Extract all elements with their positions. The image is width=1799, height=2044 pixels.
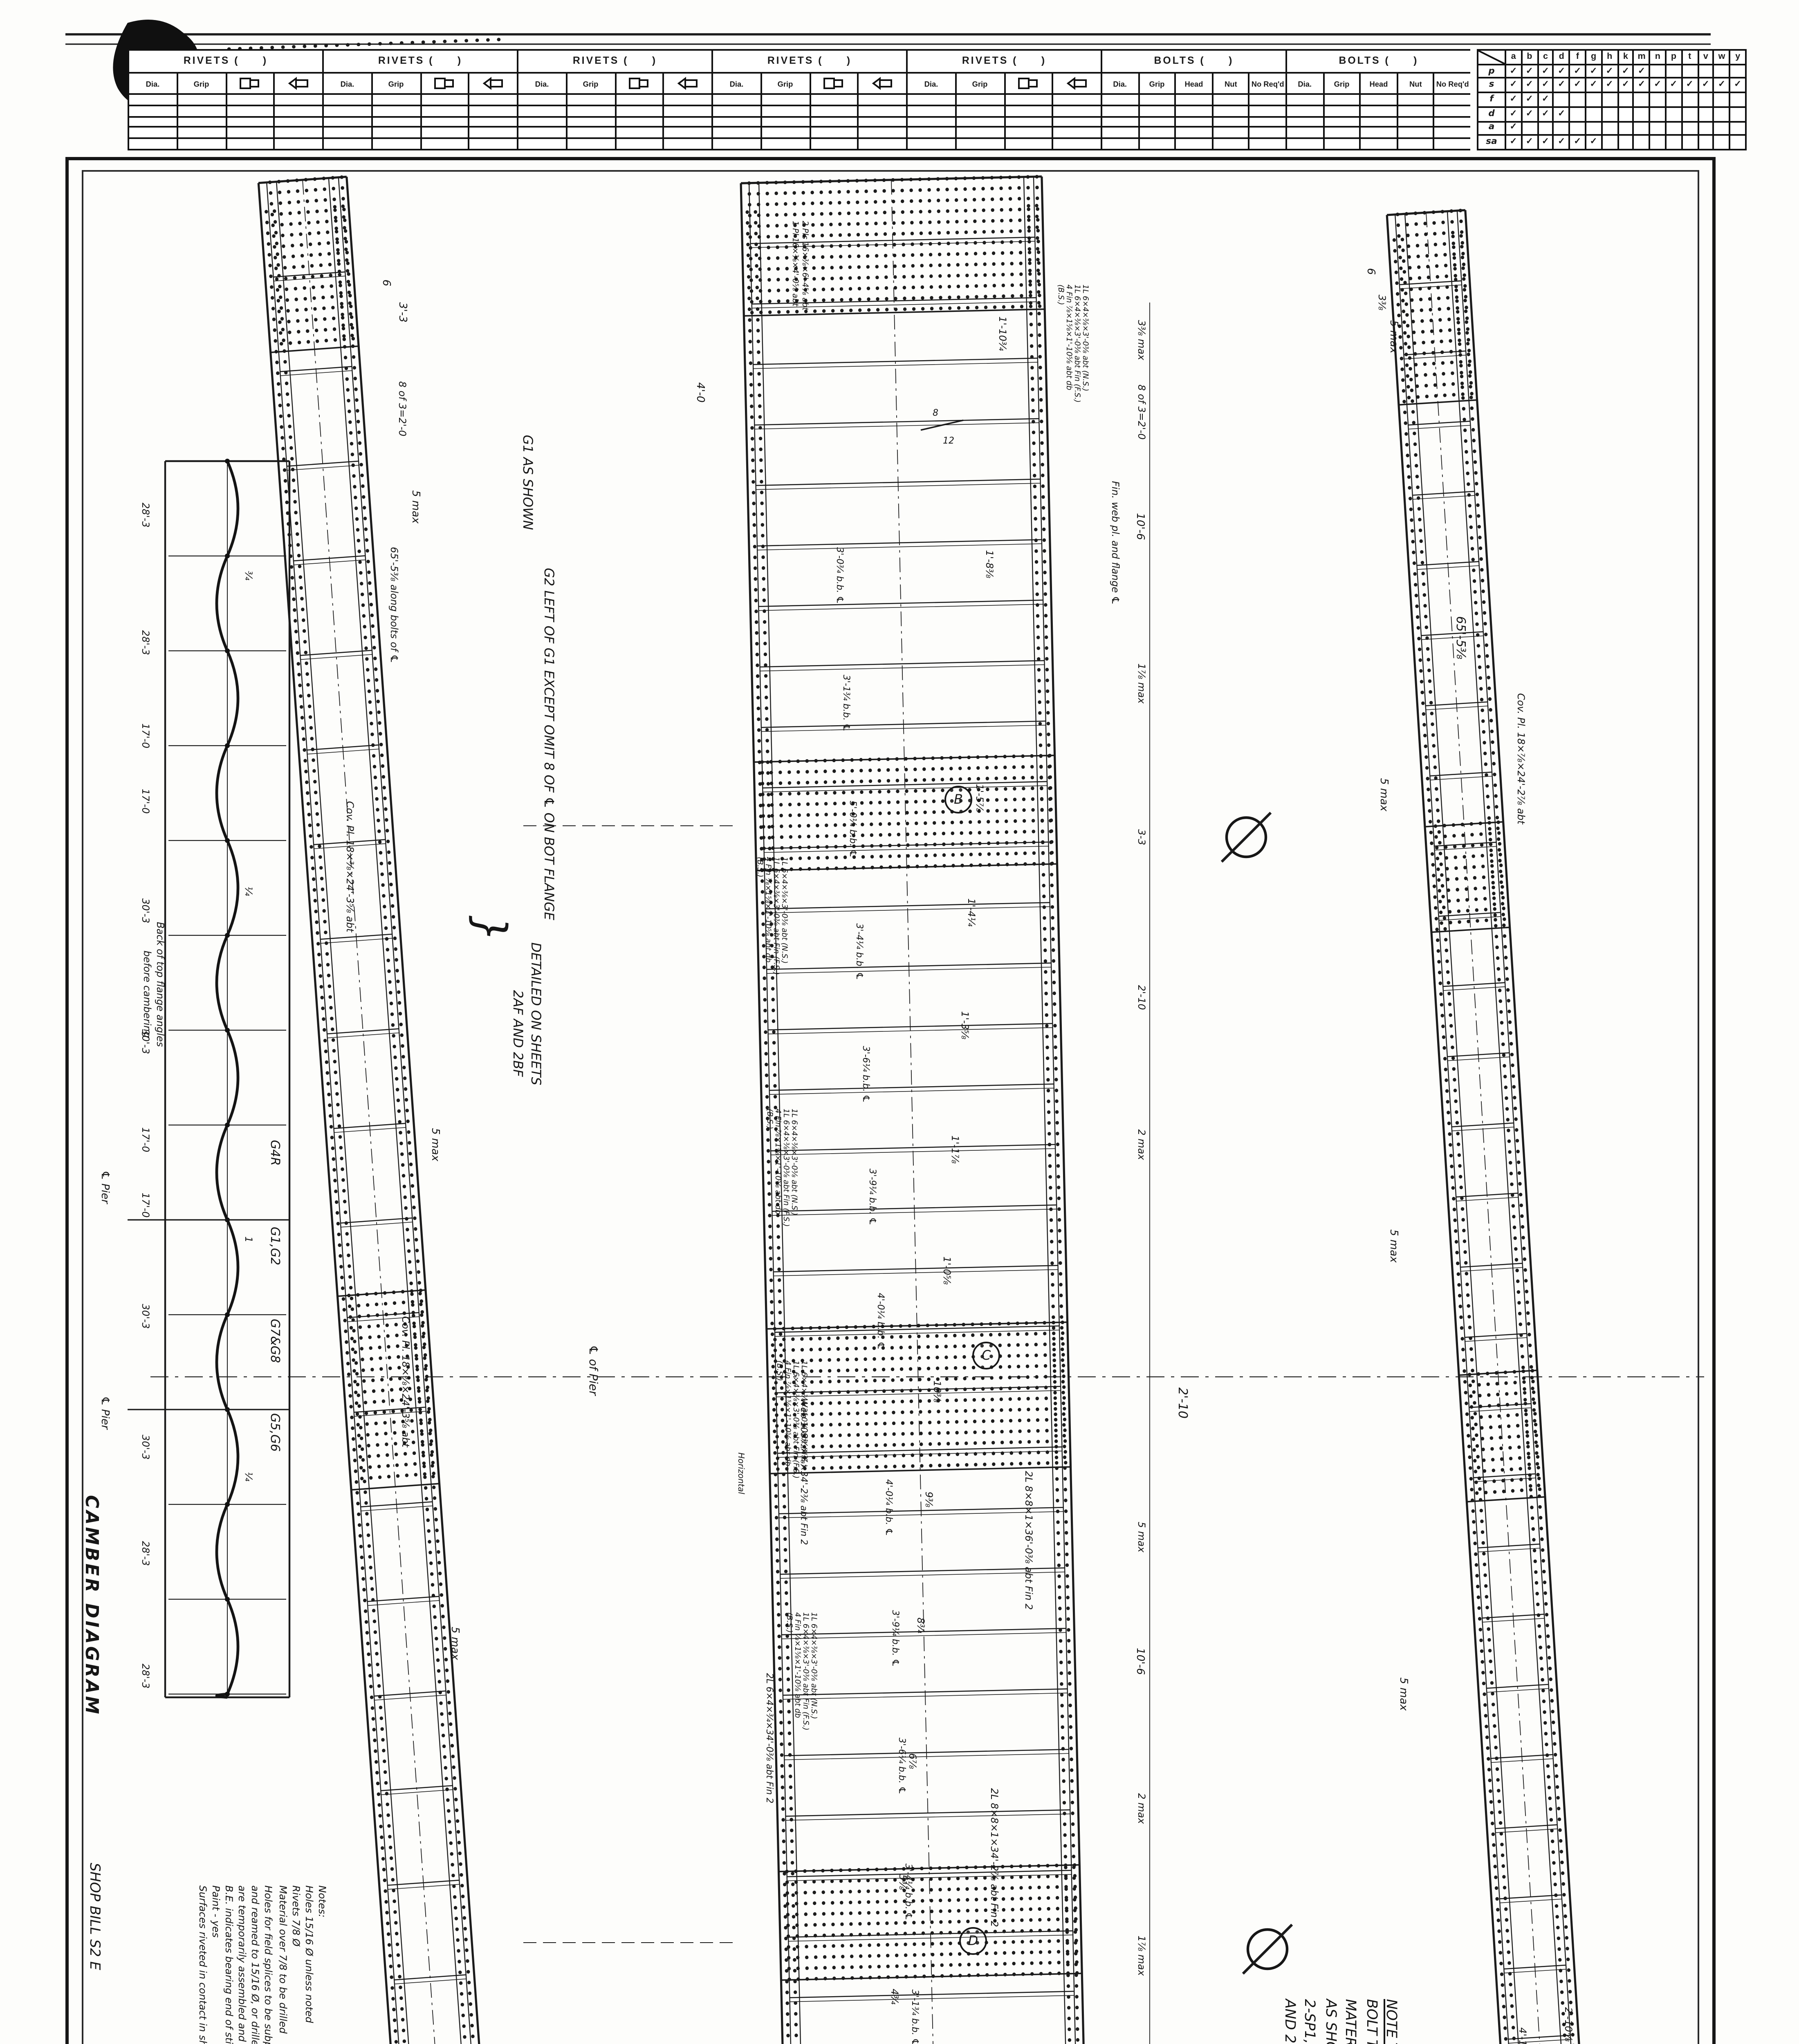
annotation-label: 5 max: [1378, 778, 1389, 811]
grid-col-header: v: [1698, 51, 1714, 63]
note-line: Notes:: [314, 1885, 327, 2044]
rivet-symbol-cell: [470, 74, 517, 93]
empty-cell: [1570, 122, 1586, 134]
empty-cell: [518, 95, 567, 104]
empty-cell: [762, 139, 810, 149]
empty-cell: [1618, 94, 1634, 106]
annotation-label: SHOP BILL S2 E: [86, 1863, 100, 1970]
empty-cell: [1731, 136, 1745, 149]
empty-cell: [859, 117, 906, 126]
annotation-label: Cov. Pl. 18×⅜×24'-3⅝ abt: [399, 1316, 409, 1448]
annotation-label: 4'-10⅝ not less: [1516, 2027, 1526, 2044]
column-header: No Req'd: [1435, 74, 1470, 93]
empty-cell: [470, 139, 517, 149]
empty-cell: [616, 139, 664, 149]
empty-cell: [1731, 122, 1745, 134]
annotation-label: }: [468, 915, 510, 942]
empty-cell: [567, 139, 616, 149]
rivet-symbol-icon: [482, 77, 505, 90]
check-mark: ✓: [1506, 108, 1522, 121]
empty-data-row: [129, 117, 322, 128]
rivet-symbol-cell: [810, 74, 859, 93]
note-line: AS SHOWN ON SHEET 2EF-: [1319, 1999, 1339, 2044]
annotation-label: 3'-6¼ b.b. ℄: [859, 1046, 868, 1103]
callout-line: 4 Fin ⅞×1⅝×1'-10⅝ abt db (B.S.): [754, 857, 770, 981]
empty-cell: [1586, 108, 1602, 121]
empty-cell: [1139, 95, 1176, 104]
empty-cell: [1102, 128, 1139, 138]
empty-cell: [129, 95, 178, 104]
annotation-label: 10'-6: [1135, 513, 1145, 540]
empty-cell: [275, 139, 322, 149]
empty-cell: [1324, 139, 1361, 149]
annotation-label: Cov. Pl. 18×⅜×24'-3⅝ abt: [343, 801, 353, 932]
empty-cell: [1213, 128, 1250, 138]
empty-cell: [1102, 117, 1139, 126]
empty-cell: [713, 95, 762, 104]
empty-cell: [762, 95, 810, 104]
empty-cell: [129, 128, 178, 138]
empty-cell: [178, 117, 227, 126]
empty-data-row: [129, 139, 322, 149]
annotation-label: 12: [943, 439, 954, 448]
annotation-label: 10⅜: [931, 1381, 940, 1403]
empty-cell: [470, 128, 517, 138]
note-line: Material over 7/8 to be drilled: [274, 1885, 287, 2044]
empty-data-row: [713, 95, 906, 106]
callout-line: 4 Fin ⅞×1⅝×1'-10⅝ abt db (B.S.): [763, 1109, 780, 1233]
note-line: 2-SP1, 4-SP2, 2-SP3, 2-SP4,: [1298, 1999, 1319, 2044]
empty-cell: [1651, 122, 1667, 134]
grid-corner: [1478, 51, 1506, 63]
empty-cell: [810, 117, 859, 126]
empty-cell: [1054, 95, 1101, 104]
check-mark: ✓: [1506, 79, 1522, 92]
empty-cell: [616, 128, 664, 138]
empty-cell: [1635, 94, 1651, 106]
annotation-label: G7&G8: [269, 1319, 281, 1363]
empty-cell: [1324, 117, 1361, 126]
group-header: RIVETS ( ): [713, 51, 906, 74]
empty-cell: [227, 128, 275, 138]
empty-data-row: [1102, 106, 1285, 117]
column-header: Grip: [956, 74, 1005, 93]
stiffener-callout: 1L 6×4×⅜×3'-0⅜ abt (N.S.)1L 6×4×⅜×3'-0⅜ …: [754, 857, 787, 981]
annotation-label: G1 AS SHOWN: [520, 435, 533, 530]
callout-line: 4 Fin ⅞×1⅝×1'-10⅝ abt db (B.S.): [783, 1612, 800, 1737]
empty-cell: [1102, 139, 1139, 149]
empty-cell: [1651, 65, 1667, 78]
note-line: Rivets 7/8 Ø: [287, 1885, 301, 2044]
grid-row: f✓✓✓: [1478, 94, 1745, 108]
annotation-label: Cov. Pl. 18×⅞×24'-2⅞ abt: [1514, 693, 1524, 825]
check-mark: ✓: [1570, 79, 1586, 92]
check-mark: ✓: [1538, 94, 1554, 106]
empty-cell: [1054, 139, 1101, 149]
annotation-label: 4¾: [888, 1989, 898, 2005]
empty-cell: [1435, 106, 1470, 115]
empty-cell: [372, 139, 421, 149]
empty-data-row: [1287, 128, 1470, 139]
check-mark: ✓: [1731, 79, 1745, 92]
empty-cell: [1714, 108, 1730, 121]
column-header: Grip: [1324, 74, 1361, 93]
empty-cell: [1005, 139, 1054, 149]
empty-cell: [1698, 122, 1714, 134]
empty-data-row: [713, 128, 906, 139]
check-mark: ✓: [1538, 108, 1554, 121]
callout-line: 1L 6×4×⅜×3'-0⅜ abt (N.S.): [799, 1360, 807, 1485]
empty-cell: [1618, 136, 1634, 149]
empty-cell: [1698, 136, 1714, 149]
empty-cell: [810, 106, 859, 115]
group-header: RIVETS ( ): [908, 51, 1101, 74]
empty-cell: [810, 128, 859, 138]
annotation-label: 65'-5⅜: [1454, 616, 1467, 659]
column-header: Head: [1176, 74, 1213, 93]
empty-cell: [1213, 95, 1250, 104]
empty-cell: [1618, 122, 1634, 134]
column-header: Dia.: [713, 74, 762, 93]
empty-cell: [713, 117, 762, 126]
empty-cell: [1139, 117, 1176, 126]
rivet-symbol-icon: [239, 77, 262, 90]
empty-data-row: [713, 139, 906, 149]
annotation-label: 3'-9¼ b.b. ℄: [888, 1610, 897, 1667]
empty-cell: [1538, 122, 1554, 134]
empty-cell: [1682, 122, 1698, 134]
empty-cell: [421, 117, 470, 126]
annotation-label: 5 max: [1135, 1522, 1145, 1552]
bolts-group: BOLTS ( )Dia.GripHeadNutNo Req'd: [1101, 49, 1285, 150]
empty-cell: [1651, 136, 1667, 149]
annotation-label: 5 max: [1388, 1229, 1399, 1263]
annotation-label: 2AF AND 2BF: [510, 990, 523, 1077]
empty-cell: [1361, 106, 1398, 115]
callout-line: 1L 6×4×⅜×3'-0⅜ abt (N.S.): [1080, 285, 1088, 409]
grid-row: p✓✓✓✓✓✓✓✓✓: [1478, 65, 1745, 79]
empty-cell: [518, 128, 567, 138]
empty-cell: [859, 106, 906, 115]
annotation-label: 1: [242, 1236, 252, 1242]
empty-cell: [664, 106, 711, 115]
note-line: MATERIAL TO GIRDER G5: [1339, 1999, 1359, 2044]
rivet-symbol-icon: [433, 77, 456, 90]
rivet-symbol-icon: [1017, 77, 1040, 90]
empty-data-row: [129, 128, 322, 139]
empty-cell: [1667, 94, 1682, 106]
empty-cell: [616, 117, 664, 126]
empty-cell: [1176, 139, 1213, 149]
callout-line: 2 Pls 16×⅜×6'-4⅝ abt: [798, 221, 808, 322]
annotation-label: 65'-5⅜ along bolts of ℄: [388, 547, 397, 663]
empty-cell: [1324, 106, 1361, 115]
annotation-label: 17'-0: [139, 1192, 149, 1217]
check-mark: ✓: [1522, 136, 1538, 149]
empty-cell: [859, 139, 906, 149]
drawing-sheet: RIVETS ( )Dia.GripRIVETS ( )Dia.GripRIVE…: [0, 0, 1799, 2044]
empty-cell: [518, 117, 567, 126]
empty-cell: [1618, 108, 1634, 121]
check-mark: ✓: [1586, 136, 1602, 149]
empty-data-row: [713, 106, 906, 117]
empty-cell: [1731, 65, 1745, 78]
empty-cell: [1714, 65, 1730, 78]
annotation-label: 8: [933, 411, 938, 420]
grid-col-header: y: [1731, 51, 1745, 63]
annotation-label: 30'-3: [139, 1304, 149, 1329]
rivet-symbol-cell: [227, 74, 275, 93]
empty-cell: [324, 128, 372, 138]
empty-cell: [1398, 128, 1435, 138]
empty-data-row: [324, 95, 517, 106]
empty-cell: [810, 95, 859, 104]
annotation-label: 3'-9¼ b.b. ℄: [866, 1169, 875, 1226]
empty-cell: [1250, 117, 1285, 126]
annotation-label: 4'-0: [695, 382, 705, 403]
empty-cell: [1435, 117, 1470, 126]
empty-cell: [1324, 95, 1361, 104]
empty-cell: [1714, 94, 1730, 106]
empty-cell: [859, 95, 906, 104]
check-mark: ✓: [1554, 79, 1570, 92]
empty-cell: [1287, 106, 1324, 115]
callout-line: 1L 6×4×⅜×3'-0⅜ abt (N.S.): [808, 1612, 817, 1737]
annotation-label: 3'-1¾ b.b. ℄: [908, 1990, 917, 2044]
empty-cell: [1250, 128, 1285, 138]
empty-cell: [1651, 94, 1667, 106]
annotation-label: 6: [1365, 268, 1376, 275]
empty-cell: [178, 128, 227, 138]
annotation-label: 8 of 3=2'-0: [1135, 385, 1145, 440]
splice-point-marker: D: [959, 1927, 987, 1955]
empty-cell: [664, 139, 711, 149]
column-header: Nut: [1213, 74, 1250, 93]
grid-col-header: k: [1618, 51, 1634, 63]
stiffener-callout: 1L 6×4×⅜×3'-0⅜ abt (N.S.)1L 6×4×⅜×3'-0⅜ …: [1054, 285, 1088, 409]
grid-col-header: w: [1714, 51, 1730, 63]
empty-cell: [1698, 108, 1714, 121]
grid-col-header: b: [1522, 51, 1538, 63]
check-mark: ✓: [1554, 108, 1570, 121]
annotation-label: 3⅜ max: [1135, 320, 1145, 361]
empty-cell: [178, 95, 227, 104]
annotation-label: ¾: [242, 571, 252, 580]
annotation-label: 1⅞ max: [1135, 663, 1145, 704]
annotation-label: 1'-5⅞: [973, 784, 983, 812]
empty-cell: [1139, 139, 1176, 149]
empty-data-row: [1102, 139, 1285, 149]
empty-cell: [762, 106, 810, 115]
empty-data-row: [1102, 128, 1285, 139]
note-line: Paint - yes: [207, 1885, 220, 2044]
check-mark: ✓: [1667, 79, 1682, 92]
note-line: Holes 15/16 Ø unless noted: [301, 1885, 314, 2044]
empty-data-row: [1287, 117, 1470, 128]
empty-cell: [1635, 136, 1651, 149]
group-header: RIVETS ( ): [324, 51, 517, 74]
annotation-label: 1'-4¼: [965, 898, 975, 926]
empty-cell: [178, 139, 227, 149]
empty-cell: [1435, 95, 1470, 104]
empty-data-row: [1287, 106, 1470, 117]
annotation-label: Horizontal: [735, 1452, 743, 1494]
check-mark: ✓: [1538, 65, 1554, 78]
empty-cell: [1398, 106, 1435, 115]
check-mark: ✓: [1714, 79, 1730, 92]
empty-cell: [1554, 122, 1570, 134]
empty-cell: [956, 139, 1005, 149]
column-header: Dia.: [324, 74, 372, 93]
check-mark: ✓: [1522, 108, 1538, 121]
column-header: Grip: [762, 74, 810, 93]
annotation-label: 4'-0¼ b.b. ℄: [882, 1479, 891, 1536]
empty-cell: [324, 117, 372, 126]
empty-cell: [1005, 95, 1054, 104]
annotation-label: 30'-3: [139, 1434, 149, 1459]
grid-col-header: g: [1586, 51, 1602, 63]
sheet-inner-border: [82, 170, 1699, 2044]
empty-cell: [1054, 128, 1101, 138]
annotation-label: 5 max: [1398, 1677, 1409, 1711]
rivet-symbol-cell: [859, 74, 906, 93]
empty-cell: [1570, 94, 1586, 106]
annotation-label: 2'-10⅞: [1562, 2007, 1572, 2042]
grid-col-header: a: [1506, 51, 1522, 63]
empty-cell: [1554, 94, 1570, 106]
empty-cell: [518, 106, 567, 115]
grid-col-header: m: [1635, 51, 1651, 63]
empty-cell: [1176, 128, 1213, 138]
empty-cell: [1522, 122, 1538, 134]
annotation-label: 1'-0⅝: [940, 1256, 950, 1284]
column-header: Grip: [1139, 74, 1176, 93]
check-mark: ✓: [1506, 136, 1522, 149]
column-header: Dia.: [129, 74, 178, 93]
group-header: RIVETS ( ): [129, 51, 322, 74]
empty-cell: [129, 139, 178, 149]
empty-cell: [1102, 106, 1139, 115]
empty-cell: [1005, 117, 1054, 126]
empty-cell: [1731, 94, 1745, 106]
annotation-label: 17'-0: [139, 723, 149, 748]
empty-data-row: [324, 106, 517, 117]
annotation-label: 6⅞: [906, 1753, 916, 1769]
check-mark: ✓: [1554, 136, 1570, 149]
grid-row-label: s: [1478, 79, 1506, 92]
note-line: AND 2-SP6: [1278, 1999, 1298, 2044]
empty-cell: [567, 106, 616, 115]
annotation-label: Fin. web pl. and flange ℄: [1109, 481, 1119, 605]
annotation-label: 17'-0: [139, 789, 149, 814]
annotation-label: 28'-3: [139, 502, 149, 527]
rivets-group: RIVETS ( )Dia.Grip: [128, 49, 322, 150]
annotation-label: 1'-10¾: [996, 316, 1006, 351]
empty-data-row: [518, 95, 711, 106]
empty-data-row: [908, 139, 1101, 149]
annotation-label: 2'-10: [1135, 985, 1145, 1010]
empty-cell: [1570, 108, 1586, 121]
empty-cell: [1361, 95, 1398, 104]
empty-cell: [1667, 136, 1682, 149]
empty-cell: [616, 95, 664, 104]
group-header: BOLTS ( ): [1102, 51, 1285, 74]
empty-data-row: [908, 117, 1101, 128]
empty-cell: [1602, 122, 1618, 134]
empty-cell: [227, 95, 275, 104]
empty-cell: [1287, 117, 1324, 126]
stiffener-callout: 1L 6×4×⅜×3'-0⅜ abt (N.S.)1L 6×4×⅜×3'-0⅜ …: [783, 1612, 817, 1737]
column-header: Dia.: [908, 74, 956, 93]
annotation-label: 28'-3: [139, 1663, 149, 1688]
rivet-symbol-cell: [421, 74, 470, 93]
annotation-label: 3'-4¼ b.b. ℄: [902, 1864, 911, 1921]
empty-data-row: [324, 139, 517, 149]
check-mark: ✓: [1618, 79, 1634, 92]
empty-data-row: [324, 117, 517, 128]
annotation-label: ℄ of Pier: [586, 1345, 598, 1395]
empty-cell: [567, 95, 616, 104]
empty-cell: [664, 95, 711, 104]
note-line: and reamed to 15/16 Ø, or drilled, while…: [247, 1885, 260, 2044]
empty-cell: [1398, 139, 1435, 149]
empty-cell: [908, 139, 956, 149]
empty-cell: [1361, 128, 1398, 138]
general-notes: Notes:Holes 15/16 Ø unless notedRivets 7…: [177, 1885, 327, 2044]
check-mark: ✓: [1635, 79, 1651, 92]
check-mark: ✓: [1570, 136, 1586, 149]
note-to-shop: NOTE TO SHOP:BOLT THE FOLLOWING SPLICEMA…: [1256, 1999, 1400, 2044]
empty-cell: [1586, 122, 1602, 134]
rivet-bolt-list-table: RIVETS ( )Dia.GripRIVETS ( )Dia.GripRIVE…: [128, 49, 1747, 150]
grid-col-header: n: [1651, 51, 1667, 63]
empty-cell: [324, 95, 372, 104]
grid-row-label: a: [1478, 122, 1506, 134]
grid-col-header: f: [1570, 51, 1586, 63]
empty-cell: [956, 106, 1005, 115]
check-mark: ✓: [1618, 65, 1634, 78]
grid-col-header: t: [1682, 51, 1698, 63]
empty-data-row: [129, 106, 322, 117]
empty-cell: [1651, 108, 1667, 121]
empty-cell: [908, 106, 956, 115]
empty-cell: [1139, 128, 1176, 138]
note-line: BOLT THE FOLLOWING SPLICE: [1359, 1999, 1380, 2044]
empty-cell: [1176, 95, 1213, 104]
grid-row: a✓: [1478, 122, 1745, 136]
group-header: BOLTS ( ): [1287, 51, 1470, 74]
annotation-label: 2 max: [1135, 1793, 1145, 1824]
empty-cell: [1667, 122, 1682, 134]
empty-cell: [567, 117, 616, 126]
callout-line: 1L 6×4×⅜×3'-0⅜ abt Fin (F.S.): [1071, 285, 1080, 409]
bolts-group: BOLTS ( )Dia.GripHeadNutNo Req'd: [1285, 49, 1470, 150]
callout-line: 4 Fin ⅞×1⅝×1'-10⅝ abt db (B.S.): [773, 1360, 790, 1485]
splice-point-marker: B: [944, 786, 972, 814]
check-mark: ✓: [1651, 79, 1667, 92]
column-header: Dia.: [1287, 74, 1324, 93]
annotation-label: 10'-6: [1135, 1648, 1145, 1675]
empty-data-row: [1287, 139, 1470, 149]
empty-cell: [1324, 128, 1361, 138]
empty-cell: [713, 128, 762, 138]
annotation-label: 5 max: [430, 1128, 440, 1161]
check-mark: ✓: [1570, 65, 1586, 78]
note-line: B.E. indicates bearing end of stiffeners…: [220, 1885, 234, 2044]
column-header: Dia.: [518, 74, 567, 93]
empty-cell: [1682, 94, 1698, 106]
annotation-label: 5 max: [410, 490, 421, 524]
